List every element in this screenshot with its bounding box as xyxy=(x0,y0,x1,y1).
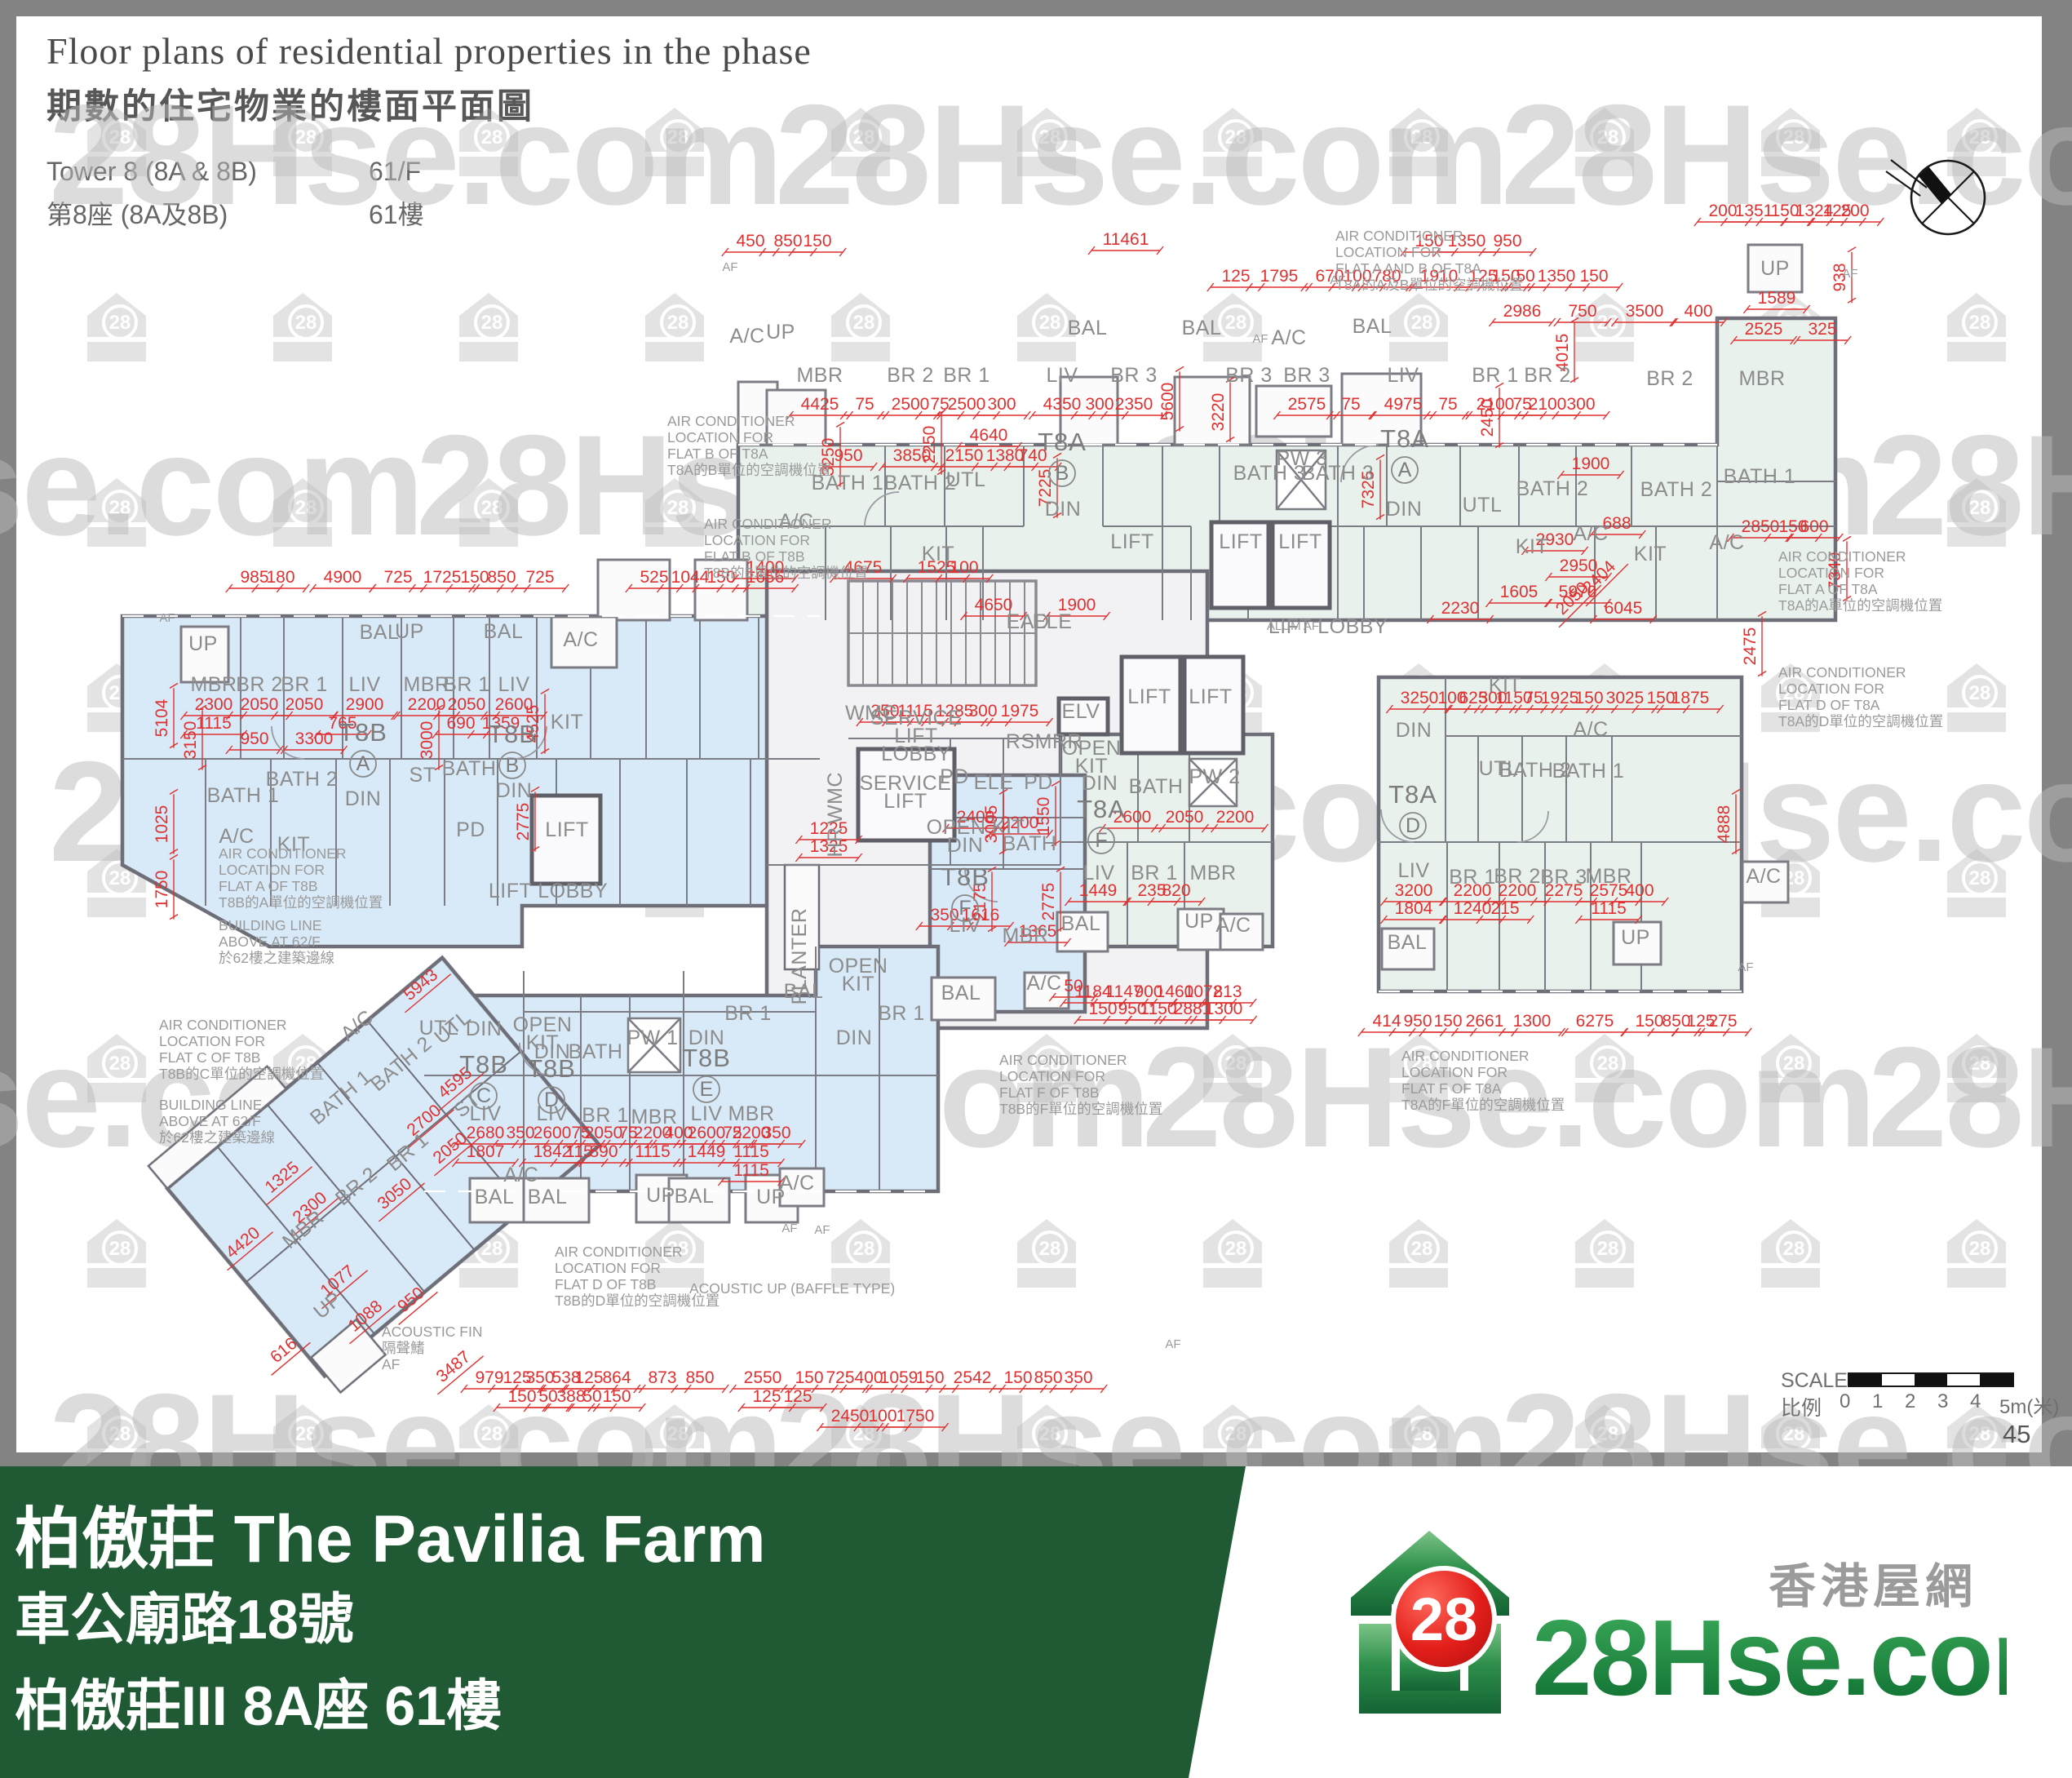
dimension-label: 3025 xyxy=(1606,689,1645,707)
watermark-28-icon xyxy=(87,1219,146,1288)
dimension-label: 1115 xyxy=(1591,899,1627,918)
room-label: BATH xyxy=(1129,775,1184,798)
room-label: LIV xyxy=(690,1102,722,1125)
room-label: BR 1 xyxy=(582,1104,629,1127)
watermark-28-icon xyxy=(645,293,704,361)
scale-tick: 4 xyxy=(1970,1390,1981,1413)
room-label: BAL xyxy=(1353,315,1392,338)
dimension-label: 2200 xyxy=(1216,808,1255,827)
room-label: BATH xyxy=(569,1040,623,1063)
dimension-label: 2200 xyxy=(408,695,446,714)
room-label: LIFT xyxy=(545,818,588,841)
room-label: A/C xyxy=(779,1172,814,1195)
room-label: BAL xyxy=(475,1186,515,1208)
room-label: WMC xyxy=(824,772,847,824)
dimension-label: 725 xyxy=(525,568,554,587)
room-label: BAL xyxy=(675,1185,715,1208)
watermark-28-icon xyxy=(1389,1219,1448,1288)
room-label: MBR xyxy=(796,364,843,387)
unit-letter-label: A xyxy=(1398,459,1412,481)
dimension-label: 1115 xyxy=(196,714,232,733)
unit-name-label: T8A xyxy=(1038,428,1087,456)
watermark-28-icon xyxy=(831,293,890,361)
dimension-label: 2500 xyxy=(892,395,930,414)
room-label: UP xyxy=(1621,926,1650,949)
dimension-label: 2850 xyxy=(1742,517,1780,536)
unit-name-label: T8A xyxy=(1388,780,1437,809)
room-label: LIFT xyxy=(1278,530,1322,553)
dimension-label: 150 xyxy=(460,568,489,587)
room-label: PW 1 xyxy=(626,1026,678,1049)
room-label: A/C xyxy=(219,825,254,848)
watermark-28-icon xyxy=(87,293,146,361)
dimension-label: 1449 xyxy=(688,1142,726,1161)
unit-name-label: T8B xyxy=(459,1050,508,1079)
dimension-label: 1115 xyxy=(635,1142,671,1161)
room-label: PW 2 xyxy=(1189,765,1240,788)
dimension-label: 150 xyxy=(1003,1368,1032,1387)
room-label: BATH xyxy=(1003,832,1057,855)
room-label: BATH 2 xyxy=(266,768,339,791)
room-label: BATH 2 xyxy=(1640,478,1713,501)
dimension-label: 2450 xyxy=(1478,399,1497,437)
room-label: MBR xyxy=(728,1102,774,1125)
scale-tick: 2 xyxy=(1905,1390,1915,1413)
room-label: BAL xyxy=(1388,931,1428,954)
watermark-28-icon xyxy=(1389,293,1448,361)
scale-tick: 0 xyxy=(1840,1390,1850,1413)
room-label: BR 3 xyxy=(1110,364,1158,387)
unit-letter-label: B xyxy=(1056,462,1069,485)
dimension-label: 850 xyxy=(773,232,802,251)
room-label: BR 2 xyxy=(236,673,283,696)
dimension-label: 5104 xyxy=(153,698,171,737)
dimension-label: 979 xyxy=(475,1368,503,1387)
dimension-label: 325 xyxy=(1808,320,1836,339)
logo-site-name-zh: 香港屋網 xyxy=(1769,1548,1977,1616)
room-label: KIT xyxy=(922,543,954,565)
watermark-text: 28Hse.com xyxy=(775,76,1507,235)
logo-badge-28: 28 xyxy=(1410,1585,1477,1653)
dimension-label: 3500 xyxy=(1626,302,1664,321)
room-label: MBR xyxy=(1002,924,1048,947)
af-tag: AF xyxy=(814,1223,830,1237)
room-label: KIT xyxy=(1489,674,1521,697)
dimension-label: 400 xyxy=(854,1368,883,1387)
dimension-label: 1025 xyxy=(153,805,171,844)
dimension-label: 600 xyxy=(1800,517,1828,536)
room-label: LIV xyxy=(1082,862,1114,885)
room-label: BAL xyxy=(1061,912,1101,935)
dimension-label: 950 xyxy=(1493,232,1521,251)
room-label: BAL xyxy=(1068,317,1108,339)
room-label: A/C xyxy=(563,628,598,651)
dimension-label: 2050 xyxy=(286,695,324,714)
dimension-label: 2475 xyxy=(1741,627,1760,666)
dimension-label: 725 xyxy=(826,1368,854,1387)
dimension-label: 985 xyxy=(240,568,268,587)
dimension-label: 690 xyxy=(446,714,475,733)
room-label: UP xyxy=(766,321,795,344)
room-label: KIT xyxy=(551,711,583,734)
dimension-label: 350 xyxy=(525,1368,554,1387)
dimension-label: 950 xyxy=(834,446,862,465)
dimension-label: 75 xyxy=(1341,395,1360,414)
room-label: UP xyxy=(646,1184,675,1207)
room-label: BR 2 xyxy=(1646,367,1693,390)
dimension-label: 2542 xyxy=(954,1368,992,1387)
scale-bar: SCALE 比例 012345m(米) xyxy=(1781,1368,2050,1425)
dimension-label: 4975 xyxy=(1384,395,1423,414)
dimension-label: 1605 xyxy=(1500,583,1539,601)
dimension-label: 11461 xyxy=(1103,230,1149,249)
dimension-label: 2775 xyxy=(1039,883,1058,921)
room-label: MBR xyxy=(1585,865,1631,888)
dimension-label: 1115 xyxy=(733,1142,769,1161)
dimension-label: 125 xyxy=(1221,267,1250,286)
dimension-label: 1750 xyxy=(897,1407,935,1426)
room-label: MBR xyxy=(631,1106,677,1128)
dimension-label: 350 xyxy=(506,1124,534,1142)
room-label: BAL xyxy=(784,980,824,1003)
room-label: DIN xyxy=(1386,498,1423,521)
dimension-label: 2600 xyxy=(533,1124,572,1142)
estate-name: 柏傲莊 The Pavilia Farm xyxy=(15,1484,766,1581)
unit-name-label: T8B xyxy=(339,718,387,747)
room-label: BR 1 xyxy=(878,1002,925,1025)
room-label: BR 2 xyxy=(1524,364,1571,387)
dimension-label: 4640 xyxy=(970,426,1008,445)
dimension-label: 1300 xyxy=(1205,1000,1243,1018)
room-label: A/C xyxy=(1271,326,1306,349)
room-label: BAL xyxy=(360,621,400,644)
scale-label-zh: 比例 xyxy=(1781,1392,1822,1421)
room-label: DIN xyxy=(496,779,533,802)
dimension-label: 950 xyxy=(240,729,268,748)
watermark-28-icon xyxy=(1947,1219,2006,1288)
room-label: BR 3 xyxy=(1283,364,1330,387)
dimension-label: 200 xyxy=(1840,202,1869,220)
dimension-label: 100 xyxy=(868,1407,897,1426)
dimension-label: 1795 xyxy=(1260,267,1299,286)
dimension-label: 3300 xyxy=(295,729,334,748)
dimension-label: 3150 xyxy=(181,721,200,760)
dimension-label: 350 xyxy=(1064,1368,1092,1387)
dimension-label: 3250 xyxy=(1401,689,1439,707)
room-label: MBR xyxy=(1189,862,1236,885)
dimension-label: 1550 xyxy=(1034,797,1053,836)
room-label: MBR xyxy=(1738,367,1785,390)
room-label: LIFT xyxy=(1110,530,1153,553)
dimension-label: 864 xyxy=(602,1368,631,1387)
unit-name-label: T8B xyxy=(488,720,537,748)
room-label: ST xyxy=(410,764,436,787)
dimension-label: 1725 xyxy=(423,568,462,587)
unit-name-label: T8A xyxy=(1380,424,1429,453)
room-label: UTL xyxy=(1463,494,1503,517)
dimension-label: 2050 xyxy=(241,695,279,714)
room-label: A/C xyxy=(1746,865,1781,888)
unit-letter-label: D xyxy=(544,1089,559,1111)
room-label: BAL xyxy=(528,1186,568,1208)
watermark-28-icon xyxy=(1017,1219,1076,1288)
dimension-label: 150 xyxy=(1433,1012,1462,1031)
unit-letter-label: F xyxy=(1095,829,1107,852)
af-tag: ALUM AF xyxy=(1267,619,1319,633)
dimension-label: 1300 xyxy=(1513,1012,1552,1031)
dimension-label: 350 xyxy=(762,1124,790,1142)
room-label: A/C xyxy=(503,1164,538,1186)
room-label: DIN xyxy=(1082,772,1118,795)
room-label: A/C xyxy=(1026,972,1061,995)
dimension-tick xyxy=(1848,247,1856,252)
room-label: A/C xyxy=(1573,718,1608,741)
dimension-label: 200 xyxy=(1708,202,1737,220)
room-label: BATH 1 xyxy=(1552,760,1625,783)
dimension-label: 300 xyxy=(968,702,997,721)
room-label: PD xyxy=(940,765,969,788)
dimension-label: 890 xyxy=(589,1142,618,1161)
plan-note: BUILDING LINEABOVE AT 62/F於62樓之建築邊線 xyxy=(159,1097,275,1146)
dimension-label: 150 xyxy=(1088,1000,1117,1018)
dimension-label: 3000 xyxy=(418,721,436,760)
dimension-label: 1589 xyxy=(1758,289,1796,308)
28hse-house-icon: 28 xyxy=(1351,1531,1509,1714)
unit-name-label: T8B xyxy=(527,1054,576,1083)
watermark-28-icon xyxy=(1947,293,2006,361)
dimension-label: 150 xyxy=(795,1368,823,1387)
unit-letter-label: E xyxy=(700,1078,714,1101)
dimension-label: 850 xyxy=(1034,1368,1062,1387)
dimension-label: 388 xyxy=(556,1387,585,1406)
dimension-label: 400 xyxy=(1684,302,1712,321)
room-label: ELE xyxy=(1033,610,1073,633)
dimension-label: 1750 xyxy=(153,871,171,909)
dimension-label: 75 xyxy=(1438,395,1457,414)
room-label: BR 2 xyxy=(887,364,934,387)
room-label: UP xyxy=(188,632,218,655)
plan-note: ACOUSTIC UP (BAFFLE TYPE) xyxy=(689,1280,895,1297)
dimension-label: 2150 xyxy=(945,446,984,465)
room-label: A/C xyxy=(1215,914,1251,937)
room-label: LIV xyxy=(498,673,529,696)
dimension-label: 275 xyxy=(1708,1012,1737,1031)
dimension-label: 50 xyxy=(538,1387,557,1406)
dimension-label: 4888 xyxy=(1715,805,1733,844)
dimension-label: 725 xyxy=(383,568,412,587)
dimension-label: 1807 xyxy=(467,1142,505,1161)
watermark-28-icon xyxy=(273,293,332,361)
room-label: LIV xyxy=(1046,364,1078,387)
room-label: A/C xyxy=(1573,522,1608,545)
room-label: A/C xyxy=(1709,531,1744,554)
scale-end-label: 5m(米) xyxy=(1999,1390,2059,1419)
dimension-label: 2500 xyxy=(948,395,986,414)
af-tag: AF xyxy=(1252,332,1268,346)
dimension-label: 2250 xyxy=(920,426,939,464)
dimension-label: 2600 xyxy=(688,1124,726,1142)
watermark-28-icon xyxy=(1575,1219,1634,1288)
plan-note: BUILDING LINEABOVE AT 62/F於62樓之建築邊線 xyxy=(219,917,334,966)
watermark-28-icon xyxy=(831,1219,890,1288)
room-label: LIFT xyxy=(1127,685,1171,708)
room-label: UTL xyxy=(946,468,986,491)
watermark-28-icon xyxy=(459,293,518,361)
dimension-label: 2300 xyxy=(195,695,233,714)
dimension-label: 525 xyxy=(640,568,668,587)
dimension-label: 1115 xyxy=(733,1161,769,1180)
watermark-28-icon xyxy=(1761,1219,1820,1288)
dimension-label: 125 xyxy=(752,1387,781,1406)
dimension-label: 2900 xyxy=(346,695,384,714)
room-label: BAL xyxy=(484,620,524,643)
dimension-label: 2661 xyxy=(1466,1012,1504,1031)
room-label: DIN xyxy=(947,834,984,857)
af-tag: AF xyxy=(1330,273,1345,287)
dimension-label: 450 xyxy=(736,232,764,251)
plan-note: AIR CONDITIONERLOCATION FORFLAT D OF T8A… xyxy=(1778,664,1943,729)
room-label: BATH 2 xyxy=(1516,477,1589,500)
dimension-label: 3220 xyxy=(1209,393,1228,432)
room-label: BATH 1 xyxy=(1724,465,1796,488)
room-label: UP xyxy=(1760,257,1790,280)
dimension-label: 2050 xyxy=(1166,808,1204,827)
watermark-28-icon xyxy=(1203,1219,1262,1288)
watermark-28-icon xyxy=(1947,663,2006,732)
dimension-label: 150 xyxy=(1574,689,1603,707)
dimension-label: 4900 xyxy=(324,568,362,587)
dimension-label: 4350 xyxy=(1043,395,1082,414)
room-label: BR 1 xyxy=(943,364,990,387)
unit-letter-label: A xyxy=(356,752,370,775)
room-label: LIV xyxy=(348,673,380,696)
room-label: LIV xyxy=(1397,859,1429,882)
unit-letter-label: D xyxy=(1406,814,1420,837)
dimension-label: 1804 xyxy=(1395,899,1433,918)
dimension-label: 950 xyxy=(1403,1012,1432,1031)
dimension-label: 1240 xyxy=(1454,899,1492,918)
room-label: BR 1 xyxy=(724,1002,772,1025)
dimension-label: 2986 xyxy=(1503,302,1542,321)
af-tag: AF xyxy=(159,611,175,625)
dimension-label: 2525 xyxy=(1745,320,1783,339)
dimension-label: 2050 xyxy=(448,695,486,714)
af-tag: AF xyxy=(1738,960,1753,974)
room-label: DIN xyxy=(836,1026,873,1049)
room-label: DIN xyxy=(345,787,382,810)
dimension-label: 150 xyxy=(1579,267,1608,286)
dimension-label: 150 xyxy=(1635,1012,1663,1031)
dimension-label: 2450 xyxy=(831,1407,870,1426)
room-label: LIV xyxy=(1387,364,1419,387)
dimension-label: 300 xyxy=(987,395,1016,414)
room-label: BR 1 xyxy=(1131,862,1178,885)
dimension-label: 1975 xyxy=(1001,702,1039,721)
room-label: ELE xyxy=(974,771,1014,794)
room-label: BAL xyxy=(1182,317,1222,339)
dimension-label: 2100 xyxy=(1529,395,1567,414)
dimension-label: 850 xyxy=(685,1368,714,1387)
dimension-label: 1875 xyxy=(1671,689,1710,707)
room-label: PD xyxy=(456,818,485,841)
room-label: HR xyxy=(824,827,847,857)
room-label: LIFT xyxy=(1219,530,1262,553)
scale-label-en: SCALE xyxy=(1781,1369,1848,1393)
dimension-label: 1350 xyxy=(1538,267,1576,286)
dimension-label: 6275 xyxy=(1576,1012,1614,1031)
scale-tick: 3 xyxy=(1937,1390,1948,1413)
room-label: PD xyxy=(1024,771,1053,794)
af-tag: AF xyxy=(722,260,737,274)
room-label: DIN xyxy=(1045,498,1082,521)
room-label: BR 1 xyxy=(1449,866,1496,889)
dimension-label: 873 xyxy=(648,1368,676,1387)
room-label: MBR xyxy=(190,673,237,696)
watermark-text: 28Hse.com xyxy=(0,406,422,565)
dimension-label: 2575 xyxy=(1288,395,1326,414)
dimension-label: 300 xyxy=(1085,395,1113,414)
room-label: BAL xyxy=(941,982,981,1004)
room-label: KIT xyxy=(1634,543,1667,565)
unit-name-label: T8A xyxy=(1077,795,1126,823)
dimension-label: 6045 xyxy=(1605,599,1643,618)
af-tag: AF xyxy=(781,1222,797,1235)
room-label: BR 1 xyxy=(443,673,490,696)
dimension-label: 1150 xyxy=(1140,1000,1176,1018)
dimension-label: 150 xyxy=(803,232,831,251)
dimension-label: 150 xyxy=(507,1387,536,1406)
af-tag: AF xyxy=(1165,1337,1180,1351)
unit-letter-label: F xyxy=(959,897,971,920)
dimension-label: 4425 xyxy=(801,395,839,414)
dimension-label: 1900 xyxy=(1572,454,1610,473)
room-label: LIFT xyxy=(1189,685,1232,708)
estate-phase-floor: 柏傲莊III 8A座 61樓 xyxy=(15,1661,502,1741)
scale-tick: 1 xyxy=(1872,1390,1883,1413)
dimension-label: 2680 xyxy=(467,1124,505,1142)
unit-name-label: T8B xyxy=(682,1044,731,1072)
dimension-label: 5600 xyxy=(1158,383,1177,421)
room-label: BATH xyxy=(442,757,497,780)
page-root: { "header": { "title_en": "Floor plans o… xyxy=(0,0,2072,1778)
dimension-label: 414 xyxy=(1372,1012,1401,1031)
dimension-label: 150 xyxy=(602,1387,631,1406)
dimension-label: 150 xyxy=(915,1368,944,1387)
room-label: BR 3 xyxy=(1540,866,1587,889)
dimension-label: 50 xyxy=(582,1387,601,1406)
watermark-text: 28Hse.com xyxy=(49,76,781,235)
dimension-label: 75 xyxy=(930,395,949,414)
dimension-label: 813 xyxy=(1213,982,1242,1001)
room-label: BR 3 xyxy=(1225,364,1273,387)
dimension-label: 1059 xyxy=(880,1368,919,1387)
room-label: BATH 3 xyxy=(1302,462,1375,485)
dimension-label: 750 xyxy=(1568,302,1596,321)
room-label: BR 1 xyxy=(1472,364,1519,387)
unit-letter-label: C xyxy=(476,1084,491,1107)
dimension-label: 300 xyxy=(1566,395,1595,414)
dimension-label: 180 xyxy=(266,568,294,587)
dimension-label: 125 xyxy=(783,1387,812,1406)
room-label: UP xyxy=(1184,910,1214,933)
dimension-label: 2350 xyxy=(1115,395,1153,414)
room-label: ELV xyxy=(1062,700,1100,723)
af-tag: AF xyxy=(1842,267,1857,281)
dimension-label: 1351 xyxy=(1735,202,1773,220)
watermark-text: 28Hse.com xyxy=(1868,1018,2072,1177)
scale-bar-graphic xyxy=(1848,1372,2014,1387)
dimension-label: 1925 xyxy=(1541,689,1579,707)
